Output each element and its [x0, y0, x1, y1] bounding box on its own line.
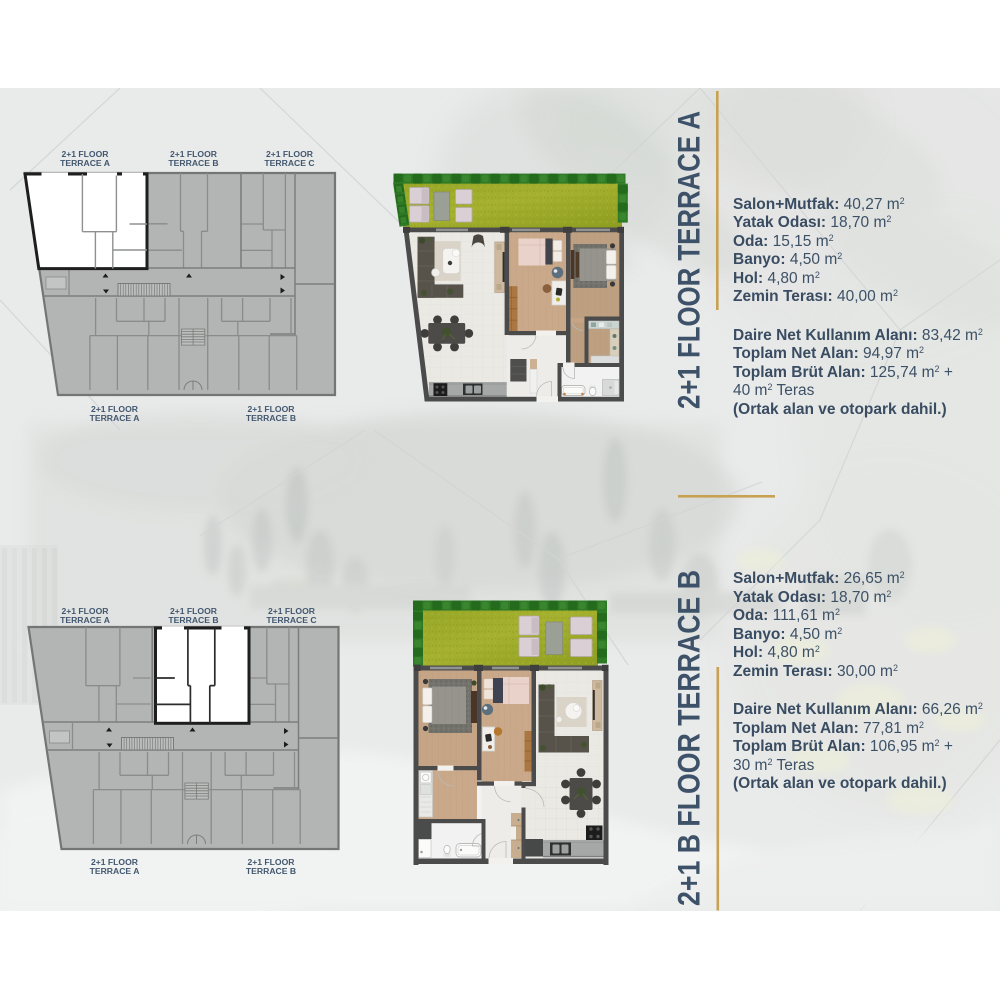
svg-text:TERRACE B: TERRACE B	[246, 413, 296, 423]
svg-text:TERRACE A: TERRACE A	[90, 413, 140, 423]
svg-text:2+1 B FLOOR TERRACE B: 2+1 B FLOOR TERRACE B	[671, 570, 707, 906]
svg-text:TERRACE B: TERRACE B	[168, 615, 218, 625]
svg-text:TERRACE A: TERRACE A	[90, 866, 140, 876]
svg-text:TERRACE A: TERRACE A	[60, 158, 110, 168]
svg-text:2+1 FLOOR TERRACE A: 2+1 FLOOR TERRACE A	[671, 111, 707, 409]
svg-text:TERRACE B: TERRACE B	[246, 866, 296, 876]
svg-text:TERRACE B: TERRACE B	[168, 158, 218, 168]
svg-text:TERRACE C: TERRACE C	[266, 615, 316, 625]
svg-text:TERRACE A: TERRACE A	[60, 615, 110, 625]
svg-text:TERRACE C: TERRACE C	[264, 158, 314, 168]
